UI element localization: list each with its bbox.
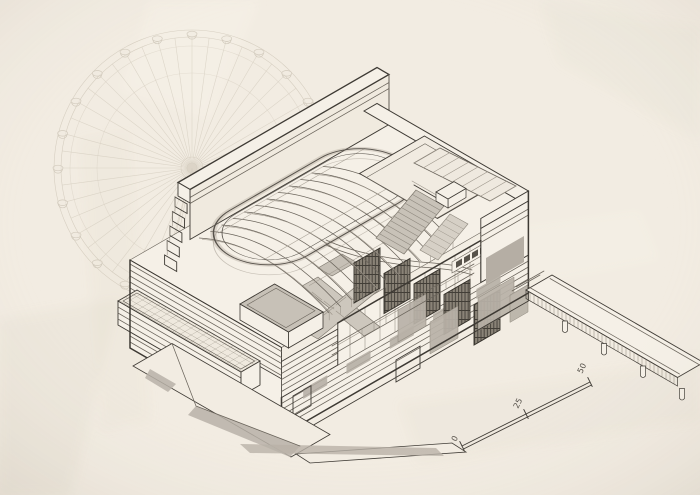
axonometric-drawing-canvas: 0 25 50 <box>0 0 700 495</box>
architectural-drawing-page: 0 25 50 <box>0 0 700 495</box>
paper-vignette <box>0 0 700 495</box>
